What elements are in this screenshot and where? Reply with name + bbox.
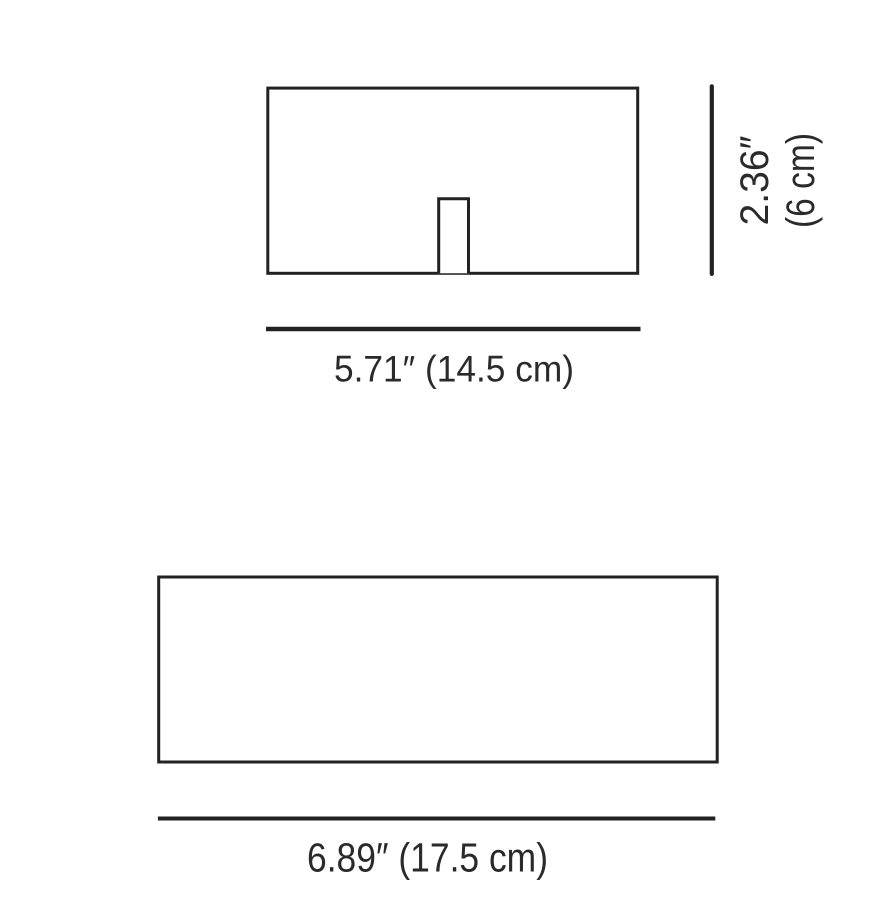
svg-text:(6 cm): (6 cm) (779, 133, 823, 228)
svg-text:2.36″: 2.36″ (733, 136, 777, 226)
svg-text:6.89″ (17.5 cm): 6.89″ (17.5 cm) (307, 834, 548, 880)
svg-text:5.71″ (14.5 cm): 5.71″ (14.5 cm) (334, 349, 574, 390)
